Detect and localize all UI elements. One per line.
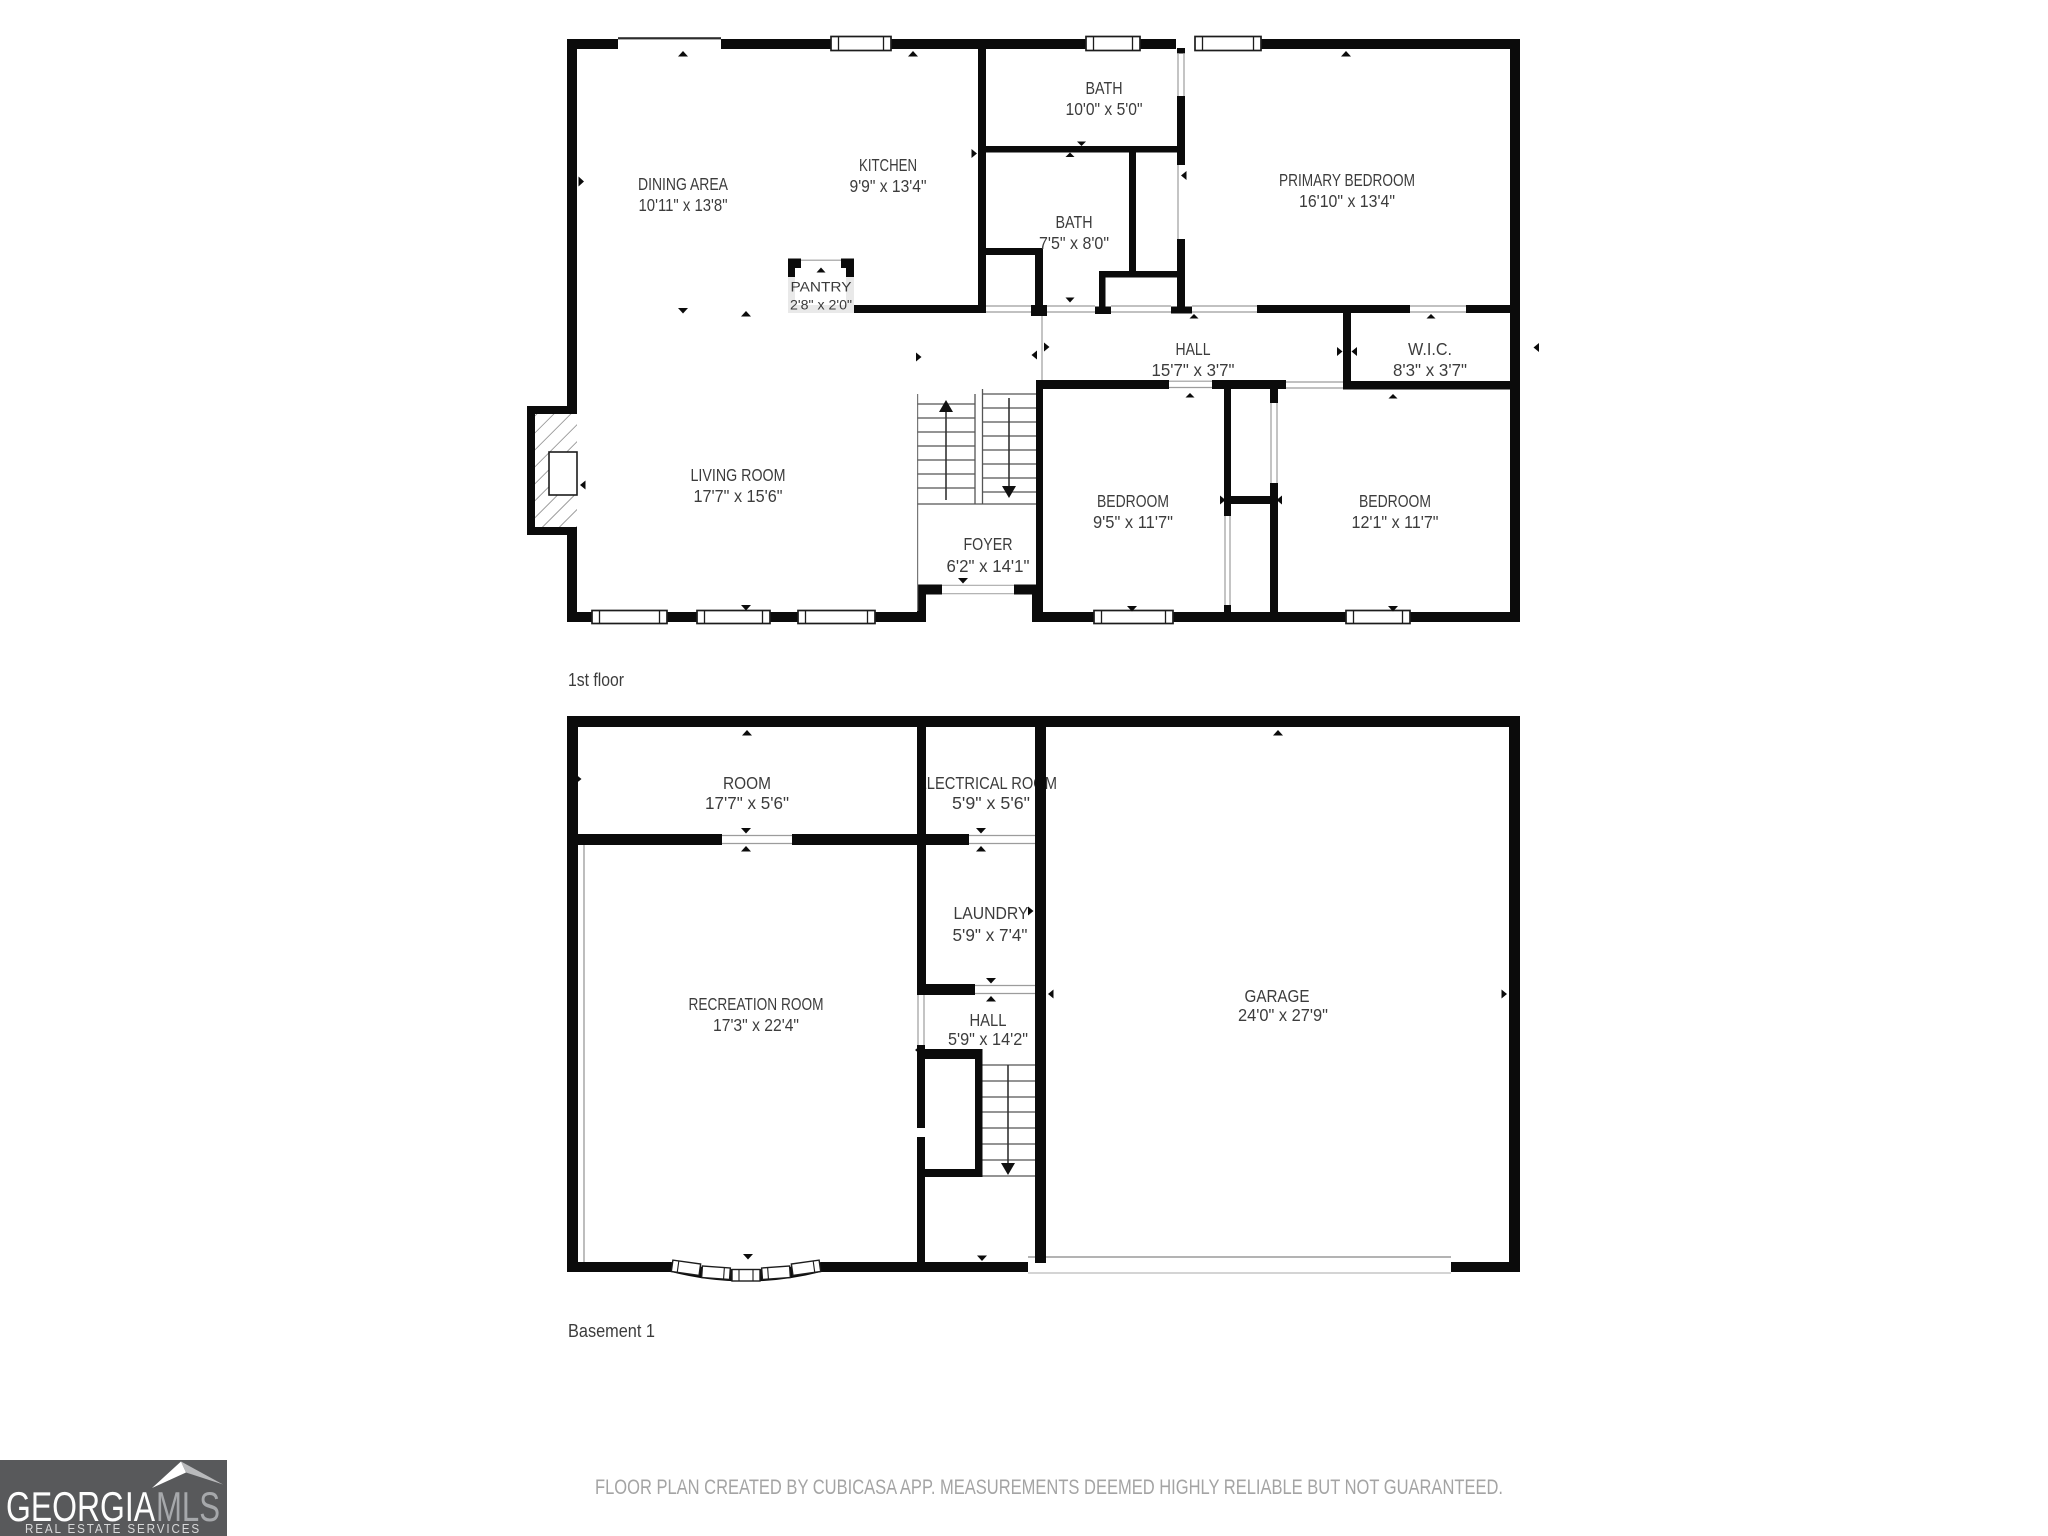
svg-text:LAUNDRY: LAUNDRY — [954, 903, 1029, 923]
svg-text:5'9" x 14'2": 5'9" x 14'2" — [948, 1029, 1028, 1049]
svg-text:PRIMARY BEDROOM: PRIMARY BEDROOM — [1279, 170, 1415, 190]
svg-text:BEDROOM: BEDROOM — [1097, 491, 1169, 511]
svg-text:REAL ESTATE SERVICES: REAL ESTATE SERVICES — [25, 1522, 201, 1536]
svg-text:FOYER: FOYER — [964, 534, 1013, 554]
svg-text:16'10" x 13'4": 16'10" x 13'4" — [1299, 191, 1395, 211]
svg-text:Basement 1: Basement 1 — [568, 1321, 655, 1341]
svg-text:HALL: HALL — [1176, 339, 1211, 359]
svg-text:BATH: BATH — [1086, 78, 1123, 98]
svg-text:15'7" x 3'7": 15'7" x 3'7" — [1152, 360, 1235, 380]
svg-text:GARAGE: GARAGE — [1245, 986, 1310, 1006]
svg-text:9'9" x 13'4": 9'9" x 13'4" — [850, 176, 927, 196]
svg-text:17'7" x 15'6": 17'7" x 15'6" — [694, 486, 783, 506]
svg-text:2'8" x 2'0": 2'8" x 2'0" — [790, 298, 852, 313]
svg-text:10'0" x 5'0": 10'0" x 5'0" — [1066, 99, 1143, 119]
svg-text:KITCHEN: KITCHEN — [859, 155, 917, 175]
svg-text:W.I.C.: W.I.C. — [1408, 339, 1452, 359]
svg-text:5'9" x 7'4": 5'9" x 7'4" — [953, 925, 1028, 945]
svg-text:DINING AREA: DINING AREA — [638, 174, 728, 194]
svg-text:10'11" x 13'8": 10'11" x 13'8" — [639, 195, 728, 215]
svg-text:LIVING ROOM: LIVING ROOM — [691, 465, 786, 485]
svg-text:8'3" x 3'7": 8'3" x 3'7" — [1393, 360, 1467, 380]
svg-text:5'9" x 5'6": 5'9" x 5'6" — [952, 793, 1030, 813]
svg-text:FLOOR PLAN CREATED BY CUBICASA: FLOOR PLAN CREATED BY CUBICASA APP. MEAS… — [595, 1476, 1503, 1499]
svg-text:PANTRY: PANTRY — [791, 280, 852, 295]
svg-text:17'7" x 5'6": 17'7" x 5'6" — [705, 793, 789, 813]
svg-text:RECREATION ROOM: RECREATION ROOM — [689, 994, 824, 1014]
svg-text:HALL: HALL — [970, 1010, 1007, 1030]
svg-text:6'2" x 14'1": 6'2" x 14'1" — [947, 556, 1030, 576]
svg-text:7'5" x 8'0": 7'5" x 8'0" — [1039, 233, 1109, 253]
svg-text:BEDROOM: BEDROOM — [1359, 491, 1431, 511]
svg-text:9'5" x 11'7": 9'5" x 11'7" — [1093, 512, 1173, 532]
svg-text:24'0" x 27'9": 24'0" x 27'9" — [1238, 1005, 1328, 1025]
svg-text:12'1" x 11'7": 12'1" x 11'7" — [1352, 512, 1439, 532]
svg-text:17'3" x 22'4": 17'3" x 22'4" — [713, 1015, 799, 1035]
svg-text:ROOM: ROOM — [723, 773, 771, 793]
svg-text:BATH: BATH — [1056, 212, 1093, 232]
svg-text:1st floor: 1st floor — [568, 670, 624, 690]
